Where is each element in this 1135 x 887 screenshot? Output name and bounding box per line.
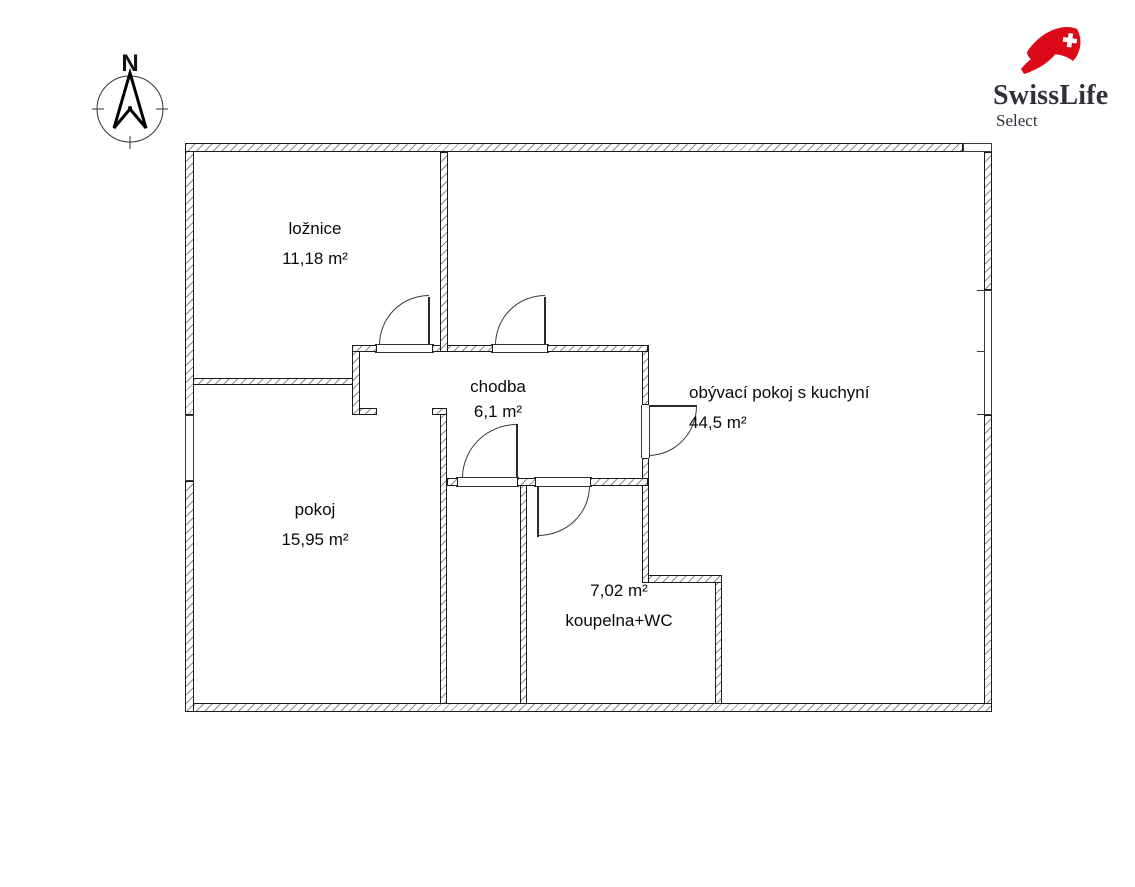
door-swing-arc	[538, 486, 590, 536]
wall-segment	[440, 152, 448, 352]
logo-mark-icon	[1013, 22, 1089, 82]
room-label-chodba: chodba 6,1 m²	[418, 377, 578, 421]
compass-north-icon: N	[85, 42, 180, 160]
door-swing-arc	[379, 295, 429, 345]
room-label-koupelna: 7,02 m² koupelna+WC	[539, 581, 699, 630]
wall-segment	[590, 478, 648, 486]
wall-segment	[642, 458, 649, 583]
wall-segment	[185, 143, 963, 152]
wall-segment	[185, 481, 194, 712]
wall-segment	[352, 345, 377, 352]
room-label-pokoj: pokoj 15,95 m²	[235, 500, 395, 549]
door-threshold	[491, 344, 549, 353]
door-leaf	[428, 297, 430, 346]
wall-segment	[352, 345, 360, 415]
swisslife-logo: SwissLife Select	[985, 22, 1115, 132]
window	[963, 143, 992, 152]
door-threshold	[375, 344, 434, 353]
wall-segment	[520, 478, 527, 712]
door-leaf	[544, 297, 546, 346]
door-threshold	[456, 477, 519, 487]
room-name: ložnice	[235, 219, 395, 238]
room-name: pokoj	[235, 500, 395, 519]
wall-segment	[185, 378, 360, 385]
window	[185, 415, 194, 481]
wall-segment	[185, 143, 194, 415]
room-area: 15,95 m²	[235, 530, 395, 549]
wall-segment	[440, 408, 447, 712]
room-name: chodba	[418, 377, 578, 396]
logo-subbrand-text: Select	[996, 111, 1038, 131]
wall-segment	[517, 478, 536, 486]
room-label-obyvaci: obývací pokoj s kuchyní 44,5 m²	[689, 383, 869, 432]
room-label-loznice: ložnice 11,18 m²	[235, 219, 395, 268]
room-name: obývací pokoj s kuchyní	[689, 383, 869, 402]
door-threshold	[534, 477, 592, 487]
door-leaf	[537, 486, 539, 537]
room-area: 6,1 m²	[418, 402, 578, 421]
wall-segment	[715, 575, 722, 712]
room-name: koupelna+WC	[539, 611, 699, 630]
wall-segment	[447, 478, 458, 486]
wall-segment	[185, 703, 992, 712]
compass-north-label: N	[121, 50, 138, 77]
wall-segment	[547, 345, 648, 352]
door-threshold	[641, 405, 650, 458]
floor-plan: N SwissLife Select ložnice 11,18 m² chod…	[0, 0, 1135, 887]
room-area: 7,02 m²	[539, 581, 699, 600]
logo-brand-text: SwissLife	[993, 80, 1113, 112]
wall-segment	[984, 415, 992, 712]
window	[984, 290, 992, 415]
wall-segment	[642, 345, 649, 405]
door-swing-arc	[462, 424, 517, 478]
wall-segment	[984, 152, 992, 290]
door-leaf	[516, 424, 518, 479]
door-swing-arc	[495, 295, 545, 345]
room-area: 44,5 m²	[689, 413, 869, 432]
room-area: 11,18 m²	[235, 249, 395, 268]
